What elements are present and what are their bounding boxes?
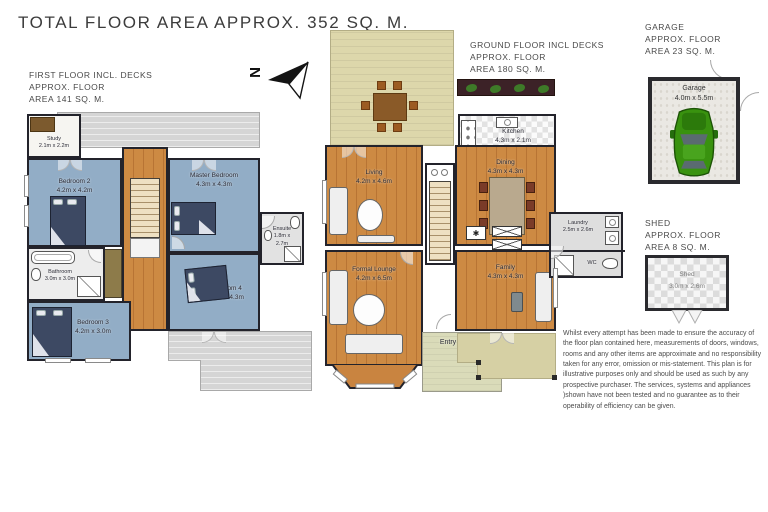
compass-arrow-icon <box>262 58 310 102</box>
room-label: Living 4.2m x 4.6m <box>327 169 421 187</box>
kitchen-sink <box>496 117 518 128</box>
deck-post <box>552 375 557 380</box>
newel-post <box>431 169 438 176</box>
sofa <box>329 187 348 235</box>
room-label: Laundry 2.5m x 2.6m <box>543 220 613 235</box>
room-label: Bathroom 3.0m x 3.0m <box>23 269 97 284</box>
room-master-bedroom: Master Bedroom 4.3m x 4.3m <box>168 158 260 253</box>
first-floor-top-deck <box>57 112 260 148</box>
room-bedroom-3: Bedroom 3 4.2m x 3.0m <box>27 301 131 361</box>
first-floor-label-line2: APPROX. FLOOR <box>29 82 152 94</box>
fireplace: ✱ <box>466 226 486 240</box>
first-floor-bottom-deck <box>168 331 312 361</box>
sink <box>264 230 272 241</box>
disclaimer-text: Whilst every attempt has been made to en… <box>563 329 763 412</box>
bay-window <box>330 364 420 390</box>
plant-icon <box>490 85 501 93</box>
ground-floor-top-deck <box>330 30 454 146</box>
room-living: Living 4.2m x 4.6m <box>325 145 423 246</box>
shed-label-line2: APPROX. FLOOR <box>645 230 721 242</box>
room-bedroom-4: Bedroom 4 3.6m x 4.3m <box>168 253 260 331</box>
wardrobe <box>103 249 122 298</box>
toilet <box>290 216 300 229</box>
window <box>45 358 71 363</box>
plant-icon <box>466 84 477 92</box>
patio-chair <box>409 101 418 110</box>
plant-icon <box>514 84 525 92</box>
patio-chair <box>393 81 402 90</box>
room-label: Dining 4.3m x 4.3m <box>457 159 554 177</box>
garage-label-line3: AREA 23 SQ. M. <box>645 46 721 58</box>
laundry-sink <box>605 216 619 228</box>
plant-icon <box>538 85 549 93</box>
deck-post <box>476 360 481 365</box>
shed-plan: Shed 3.0m x 2.6m <box>645 255 729 311</box>
ground-floor-bottom-deck-lower <box>477 362 556 379</box>
shed-label-line1: SHED <box>645 218 721 230</box>
room-label: Bedroom 2 4.2m x 4.2m <box>29 178 120 196</box>
room-family: Family 4.3m x 4.3m <box>455 250 556 331</box>
pillow <box>67 199 77 205</box>
double-door <box>202 332 226 343</box>
bed <box>50 196 86 246</box>
shed-label-line3: AREA 8 SQ. M. <box>645 242 721 254</box>
bed <box>32 307 72 357</box>
stairs-ground-floor <box>429 181 451 261</box>
window <box>553 268 558 308</box>
sofa <box>329 270 348 325</box>
garage-room-dims: 4.0m x 5.5m <box>652 94 736 105</box>
sink-bowl <box>504 119 511 126</box>
garage-area-label: GARAGE APPROX. FLOOR AREA 23 SQ. M. <box>645 22 721 58</box>
cabinet <box>492 239 522 250</box>
sheet-fold <box>187 281 201 302</box>
first-floor-bottom-deck-lower <box>200 360 312 391</box>
ground-floor-area-label: GROUND FLOOR INCL DECKS APPROX. FLOOR AR… <box>470 40 604 76</box>
window <box>322 272 327 316</box>
double-door <box>490 333 514 344</box>
ground-floor-label-line1: GROUND FLOOR INCL DECKS <box>470 40 604 52</box>
shed-area-label: SHED APPROX. FLOOR AREA 8 SQ. M. <box>645 218 721 254</box>
pillow <box>53 310 63 316</box>
double-door <box>342 147 366 158</box>
tv <box>511 292 523 312</box>
patio-table <box>373 93 407 121</box>
room-label: Study 2.1m x 2.2m <box>29 136 79 151</box>
dining-chair <box>526 200 535 211</box>
garage-label-line2: APPROX. FLOOR <box>645 34 721 46</box>
newel-post <box>441 169 448 176</box>
pillow <box>174 221 180 231</box>
patio-chair <box>377 123 386 132</box>
garage-plan: Garage 4.0m x 5.5m <box>648 77 740 184</box>
window <box>24 205 29 227</box>
laundry-annex: Laundry 2.5m x 2.6m WC <box>549 212 623 278</box>
cabinet <box>492 226 522 237</box>
first-floor-label-line1: FIRST FLOOR INCL. DECKS <box>29 70 152 82</box>
first-floor-area-label: FIRST FLOOR INCL. DECKS APPROX. FLOOR AR… <box>29 70 152 106</box>
shed-room-name: Shed <box>648 270 726 280</box>
compass-north-arrow: N <box>250 58 310 106</box>
double-door <box>58 160 82 171</box>
garden-bed <box>457 79 555 96</box>
coffee-table <box>353 294 385 326</box>
stairwell <box>425 163 455 265</box>
coffee-table <box>357 199 383 231</box>
pillow <box>188 272 195 283</box>
tv-unit <box>357 235 395 243</box>
room-bedroom-2: Bedroom 2 4.2m x 4.2m <box>27 158 122 247</box>
ground-floor-label-line3: AREA 180 SQ. M. <box>470 64 604 76</box>
stair-landing <box>130 238 160 258</box>
entry-door-arc <box>436 314 451 329</box>
toilet <box>602 258 618 269</box>
dining-chair <box>526 218 535 229</box>
window <box>24 175 29 197</box>
ground-floor-label-line2: APPROX. FLOOR <box>470 52 604 64</box>
room-formal-lounge: Formal Lounge 4.2m x 6.5m <box>325 250 423 366</box>
patio-chair <box>393 123 402 132</box>
garage-room-name: Garage <box>652 84 736 95</box>
sink-bowl <box>609 219 616 226</box>
dining-chair <box>526 182 535 193</box>
washing-machine <box>605 231 619 245</box>
bed <box>171 202 216 235</box>
sheet-fold <box>51 227 65 245</box>
pillow <box>174 206 180 216</box>
dining-chair <box>479 182 488 193</box>
window <box>322 180 327 224</box>
patio-chair <box>361 101 370 110</box>
double-door <box>192 160 216 171</box>
desk <box>30 117 55 132</box>
sofa <box>345 334 403 354</box>
sheet-fold <box>33 334 49 356</box>
room-study: Study 2.1m x 2.2m <box>27 114 81 158</box>
shower <box>284 246 301 262</box>
pillow <box>36 310 46 316</box>
stairs-first-floor <box>130 178 160 238</box>
sofa <box>535 272 552 322</box>
garage-door-arc <box>740 92 759 111</box>
shed-room-dims: 3.0m x 2.6m <box>648 282 726 292</box>
pillow <box>53 199 63 205</box>
first-floor-label-line3: AREA 141 SQ. M. <box>29 94 152 106</box>
deck-post <box>476 375 481 380</box>
room-label: Kitchen 4.3m x 2.1m <box>466 128 560 146</box>
dining-chair <box>479 200 488 211</box>
washer-drum <box>609 235 616 242</box>
room-label: Master Bedroom 4.3m x 4.3m <box>170 172 258 190</box>
garage-label-line1: GARAGE <box>645 22 721 34</box>
bathtub <box>31 251 75 264</box>
shed-door-icon <box>670 310 706 325</box>
sheet-fold <box>199 220 215 234</box>
car-top-view <box>665 106 723 178</box>
window <box>85 358 111 363</box>
patio-chair <box>377 81 386 90</box>
bed <box>184 265 229 303</box>
